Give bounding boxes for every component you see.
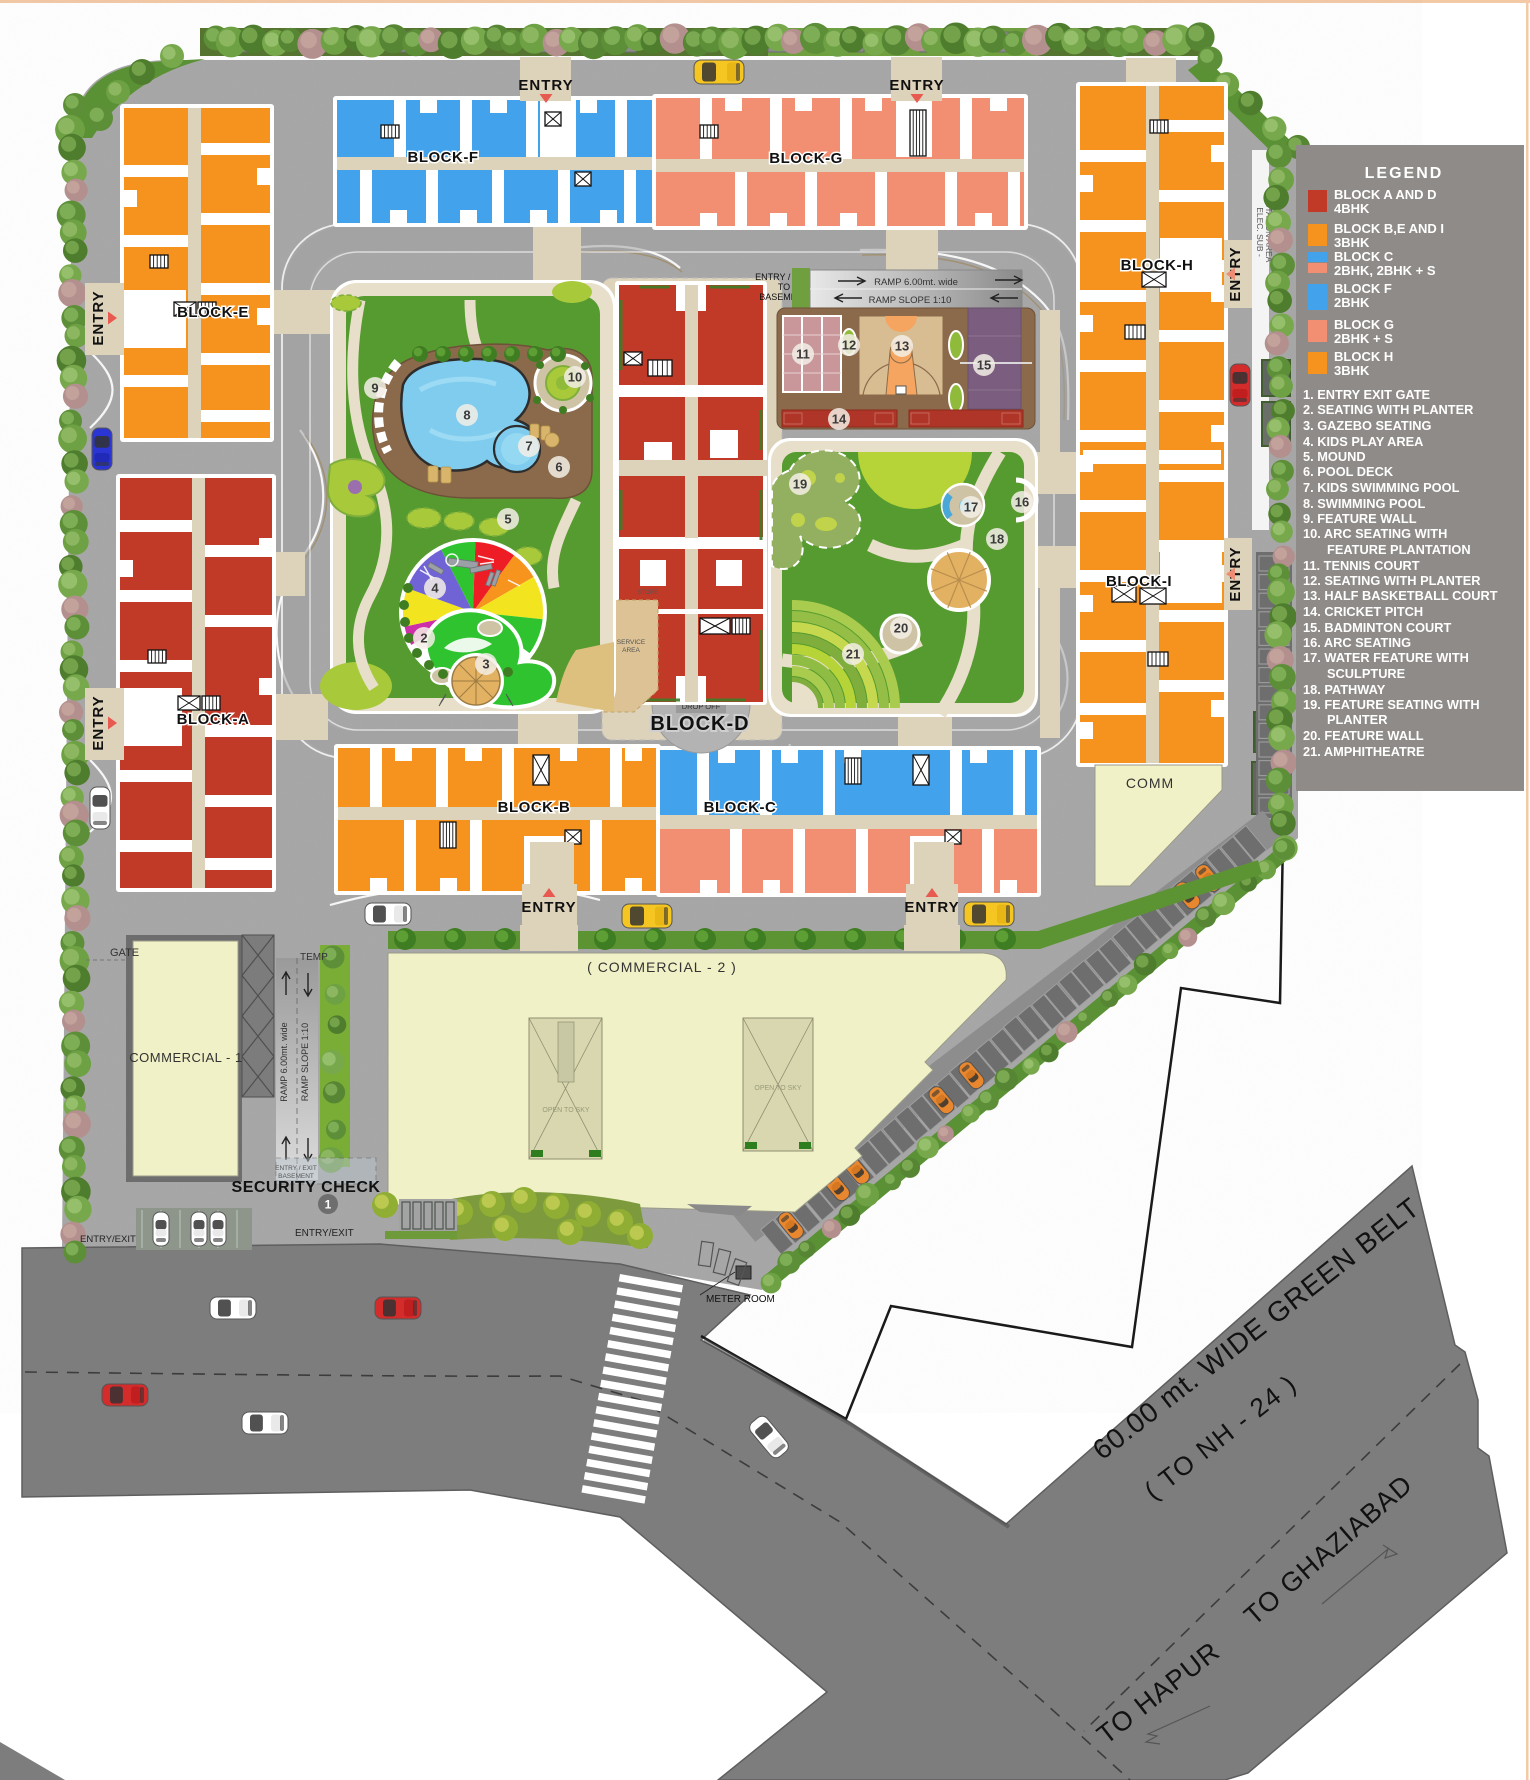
svg-text:1: 1 <box>325 1198 332 1212</box>
svg-text:FEATURE PLANTATION: FEATURE PLANTATION <box>1327 542 1471 557</box>
svg-text:2. SEATING WITH PLANTER: 2. SEATING WITH PLANTER <box>1303 402 1473 417</box>
svg-text:BLOCK-F: BLOCK-F <box>408 149 479 166</box>
svg-text:ENTRY: ENTRY <box>90 695 107 750</box>
svg-text:ELEC. SUB -: ELEC. SUB - <box>1255 207 1265 257</box>
svg-text:15. BADMINTON COURT: 15. BADMINTON COURT <box>1303 620 1452 635</box>
svg-text:18. PATHWAY: 18. PATHWAY <box>1303 682 1386 697</box>
svg-text:2: 2 <box>420 631 427 646</box>
svg-text:3: 3 <box>482 657 489 672</box>
svg-text:SERVICE: SERVICE <box>617 639 646 646</box>
svg-text:AREA: AREA <box>622 647 640 654</box>
svg-text:ENTRY/EXIT: ENTRY/EXIT <box>80 1234 136 1245</box>
svg-text:4: 4 <box>431 581 439 596</box>
svg-text:10: 10 <box>568 370 582 385</box>
svg-text:OPEN TO SKY: OPEN TO SKY <box>754 1085 802 1092</box>
svg-text:OPEN TO SKY: OPEN TO SKY <box>542 1107 590 1114</box>
svg-text:BLOCK-B: BLOCK-B <box>498 799 571 816</box>
svg-text:BLOCK A AND D: BLOCK A AND D <box>1334 187 1437 202</box>
svg-text:18: 18 <box>990 532 1004 547</box>
svg-text:5: 5 <box>504 512 511 527</box>
svg-text:4BHK: 4BHK <box>1334 201 1370 216</box>
svg-text:BLOCK-I: BLOCK-I <box>1106 573 1172 590</box>
svg-text:20. FEATURE WALL: 20. FEATURE WALL <box>1303 728 1424 743</box>
svg-text:10. ARC SEATING WITH: 10. ARC SEATING WITH <box>1303 526 1447 541</box>
svg-text:6: 6 <box>555 460 562 475</box>
svg-text:STORE: STORE <box>638 590 659 596</box>
svg-text:METER ROOM: METER ROOM <box>706 1294 775 1305</box>
svg-text:14: 14 <box>832 412 847 427</box>
svg-text:ENTRY/EXIT: ENTRY/EXIT <box>295 1228 354 1239</box>
svg-text:COMM: COMM <box>1126 775 1174 791</box>
svg-text:BLOCK F: BLOCK F <box>1334 281 1392 296</box>
svg-text:1. ENTRY EXIT GATE: 1. ENTRY EXIT GATE <box>1303 387 1431 402</box>
svg-text:ENTRY / EXIT: ENTRY / EXIT <box>275 1165 317 1172</box>
svg-text:17: 17 <box>964 500 978 515</box>
svg-text:LEGEND: LEGEND <box>1365 165 1444 182</box>
svg-text:RAMP SLOPE 1:10: RAMP SLOPE 1:10 <box>300 1023 310 1101</box>
svg-text:BLOCK-E: BLOCK-E <box>177 304 249 321</box>
svg-text:SECURITY CHECK: SECURITY CHECK <box>232 1179 381 1196</box>
svg-text:2BHK, 2BHK + S: 2BHK, 2BHK + S <box>1334 263 1436 278</box>
svg-text:5. MOUND: 5. MOUND <box>1303 449 1366 464</box>
svg-text:8. SWIMMING POOL: 8. SWIMMING POOL <box>1303 496 1425 511</box>
svg-text:TEMP: TEMP <box>300 952 328 963</box>
svg-text:8: 8 <box>463 408 470 423</box>
svg-text:16. ARC SEATING: 16. ARC SEATING <box>1303 635 1411 650</box>
svg-text:3BHK: 3BHK <box>1334 235 1370 250</box>
svg-text:BLOCK-A: BLOCK-A <box>177 711 250 728</box>
svg-text:3. GAZEBO SEATING: 3. GAZEBO SEATING <box>1303 418 1432 433</box>
svg-text:21: 21 <box>846 647 860 662</box>
svg-text:BLOCK G: BLOCK G <box>1334 317 1394 332</box>
svg-text:7. KIDS SWIMMING POOL: 7. KIDS SWIMMING POOL <box>1303 480 1460 495</box>
svg-text:BLOCK H: BLOCK H <box>1334 349 1393 364</box>
svg-text:GATE: GATE <box>110 947 139 959</box>
svg-text:SCULPTURE: SCULPTURE <box>1327 666 1406 681</box>
svg-text:2BHK: 2BHK <box>1334 295 1370 310</box>
svg-text:ENTRY: ENTRY <box>889 77 944 94</box>
svg-text:16: 16 <box>1015 495 1029 510</box>
svg-text:RAMP SLOPE 1:10: RAMP SLOPE 1:10 <box>869 295 952 306</box>
svg-text:ENTRY: ENTRY <box>90 290 107 345</box>
svg-text:13. HALF BASKETBALL COURT: 13. HALF BASKETBALL COURT <box>1303 588 1498 603</box>
svg-text:BLOCK C: BLOCK C <box>1334 249 1394 264</box>
svg-text:20: 20 <box>894 621 908 636</box>
svg-text:21. AMPHITHEATRE: 21. AMPHITHEATRE <box>1303 744 1425 759</box>
svg-text:9. FEATURE WALL: 9. FEATURE WALL <box>1303 511 1417 526</box>
svg-text:12. SEATING WITH PLANTER: 12. SEATING WITH PLANTER <box>1303 573 1481 588</box>
svg-text:RAMP 6.00mt. wide: RAMP 6.00mt. wide <box>874 277 958 288</box>
svg-text:2BHK + S: 2BHK + S <box>1334 331 1393 346</box>
svg-text:4. KIDS PLAY AREA: 4. KIDS PLAY AREA <box>1303 434 1423 449</box>
svg-text:19: 19 <box>793 477 807 492</box>
svg-text:15: 15 <box>977 358 991 373</box>
svg-text:14. CRICKET PITCH: 14. CRICKET PITCH <box>1303 604 1423 619</box>
svg-text:17. WATER FEATURE WITH: 17. WATER FEATURE WITH <box>1303 650 1469 665</box>
svg-text:12: 12 <box>842 338 856 353</box>
svg-text:7: 7 <box>525 439 532 454</box>
svg-text:COMMERCIAL - 1: COMMERCIAL - 1 <box>129 1050 242 1065</box>
svg-text:ENTRY: ENTRY <box>904 899 959 916</box>
svg-text:ENTRY: ENTRY <box>518 77 573 94</box>
svg-text:( COMMERCIAL - 2 ): ( COMMERCIAL - 2 ) <box>587 959 737 975</box>
svg-text:BLOCK-D: BLOCK-D <box>650 713 749 735</box>
svg-text:BLOCK-C: BLOCK-C <box>704 799 777 816</box>
svg-text:3BHK: 3BHK <box>1334 363 1370 378</box>
svg-text:11. TENNIS COURT: 11. TENNIS COURT <box>1303 558 1420 573</box>
svg-text:BLOCK B,E AND I: BLOCK B,E AND I <box>1334 221 1444 236</box>
svg-text:19. FEATURE SEATING WITH: 19. FEATURE SEATING WITH <box>1303 697 1480 712</box>
svg-text:PLANTER: PLANTER <box>1327 712 1387 727</box>
svg-text:TO: TO <box>778 282 790 292</box>
svg-text:BLOCK-G: BLOCK-G <box>769 150 843 167</box>
svg-text:6. POOL DECK: 6. POOL DECK <box>1303 464 1394 479</box>
svg-text:BLOCK-H: BLOCK-H <box>1121 257 1194 274</box>
svg-text:9: 9 <box>371 381 378 396</box>
svg-text:RAMP 6.00mt. wide: RAMP 6.00mt. wide <box>279 1022 289 1101</box>
svg-text:13: 13 <box>895 339 909 354</box>
svg-text:11: 11 <box>796 347 810 362</box>
svg-text:ENTRY: ENTRY <box>521 899 576 916</box>
